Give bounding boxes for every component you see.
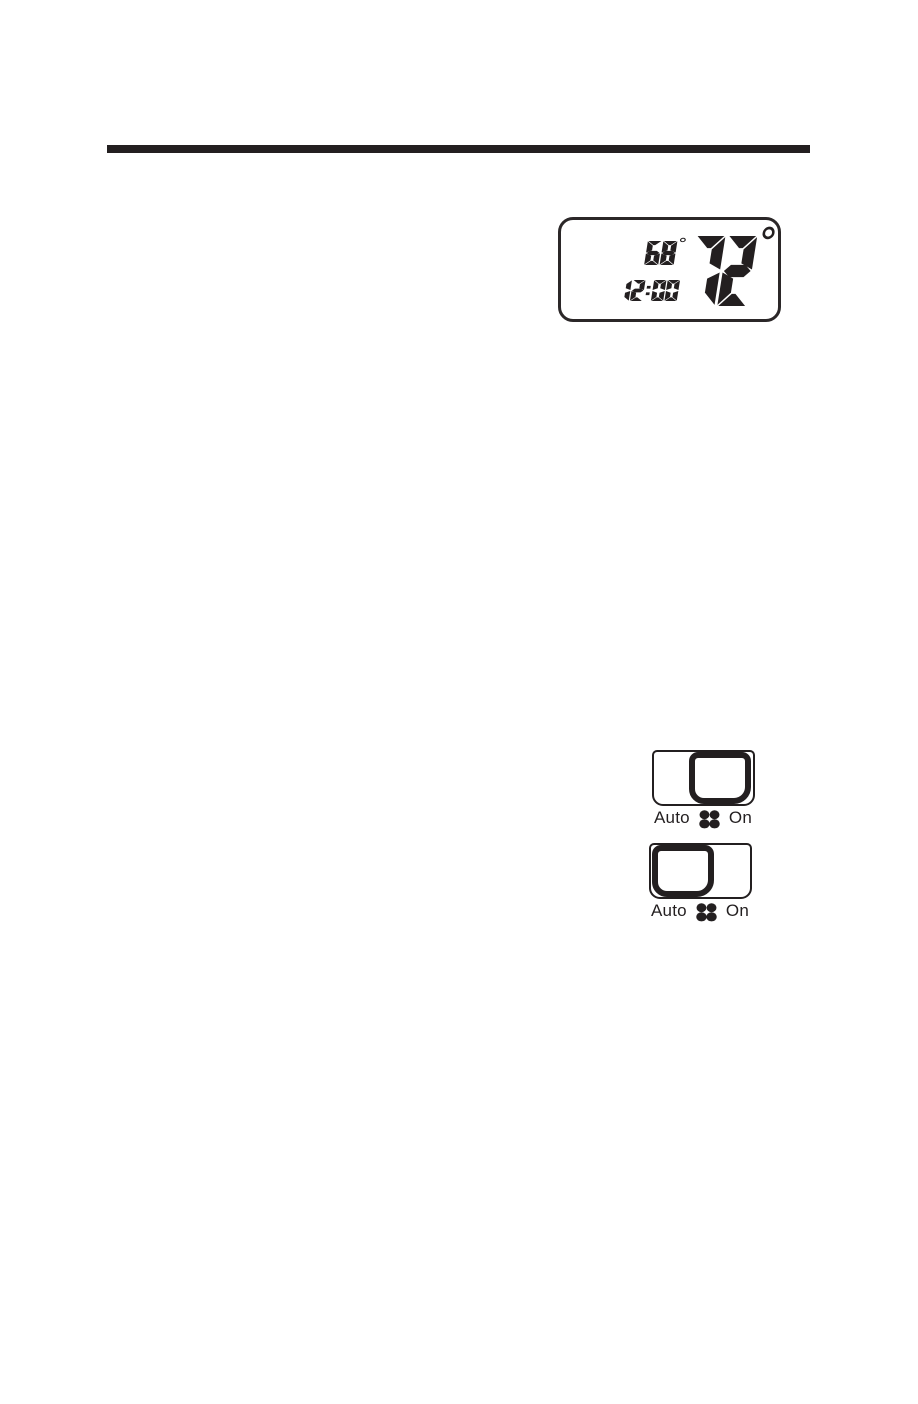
- setpoint-temperature-display: [646, 241, 685, 265]
- switch-slot: [652, 750, 755, 806]
- fan-auto-label: Auto: [651, 901, 687, 921]
- fan-on-label: On: [729, 808, 752, 828]
- fan-icon: [699, 810, 720, 829]
- switch-knob: [652, 845, 714, 897]
- section-divider-rule: [107, 145, 810, 153]
- fan-switch-on-position: Auto On: [652, 750, 755, 828]
- clock-time-display: [618, 280, 678, 301]
- switch-knob: [689, 752, 751, 804]
- room-temperature-display: [691, 236, 771, 306]
- fan-auto-label: Auto: [654, 808, 690, 828]
- switch-slot: [649, 843, 752, 899]
- fan-on-label: On: [726, 901, 749, 921]
- thermostat-lcd-display: [558, 217, 781, 322]
- manual-page: Auto On Auto: [0, 0, 918, 1404]
- fan-icon: [696, 903, 717, 922]
- switch-labels-row: Auto On: [649, 901, 752, 921]
- fan-switch-auto-position: Auto On: [649, 843, 752, 921]
- switch-labels-row: Auto On: [652, 808, 755, 828]
